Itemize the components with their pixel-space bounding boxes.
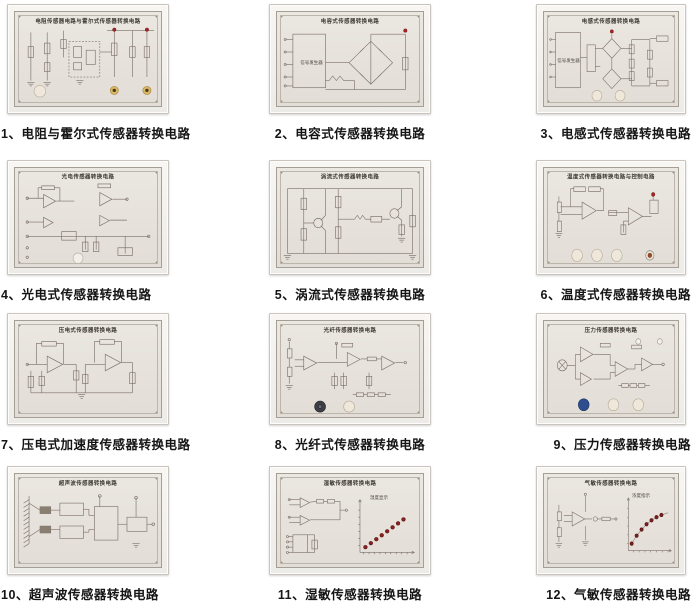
- circuit-art: [549, 489, 673, 563]
- panel-photo-2: 电容式传感器转换电路 信号发生器: [269, 4, 431, 114]
- graph-title-label: 浓度指示: [632, 492, 650, 498]
- circuit-art: [20, 336, 156, 413]
- panel-photo-1: 电阻传感器电路与霍尔式传感器转换电路: [7, 4, 169, 114]
- circuit-art: [282, 183, 418, 263]
- panel-title: 涡流式传感器转换电路: [284, 172, 415, 180]
- panel-cell-11: 湿敏传感器转换电路 湿度显示 11、湿敏传感器转换电路: [233, 460, 467, 603]
- panel-caption: 4、光电式传感器转换电路: [0, 284, 233, 303]
- panel-face: 压电式传感器转换电路: [14, 320, 162, 418]
- circuit-art: [20, 183, 156, 263]
- panel-cell-8: 光纤传感器转换电路 8、光纤式传感器转换电路: [233, 307, 467, 460]
- panel-caption: 2、电容式传感器转换电路: [233, 123, 467, 142]
- panel-caption: 10、超声波传感器转换电路: [0, 584, 233, 603]
- panel-cell-12: 气敏传感器转换电路 浓度指示 12、气敏传感器转换电路: [467, 460, 700, 603]
- panel-title: 光纤传感器转换电路: [284, 325, 415, 333]
- panel-face: 光纤传感器转换电路: [276, 320, 424, 418]
- panel-caption: 9、压力传感器转换电路: [467, 434, 700, 453]
- panel-face: 温度式传感器转换电路与控制电路: [543, 167, 679, 268]
- signal-generator-label: 信号发生器: [300, 59, 323, 65]
- panel-face: 超声波传感器转换电路: [14, 473, 162, 568]
- panel-face: 电阻传感器电路与霍尔式传感器转换电路: [14, 11, 162, 107]
- panel-face: 压力传感器转换电路: [543, 320, 679, 418]
- panel-title: 电阻传感器电路与霍尔式传感器转换电路: [22, 16, 153, 24]
- circuit-art: [20, 489, 156, 563]
- circuit-art: [282, 489, 418, 563]
- panel-title: 压电式传感器转换电路: [22, 325, 153, 333]
- panel-title: 压力传感器转换电路: [551, 325, 672, 333]
- panel-title: 光电传感器转换电路: [22, 172, 153, 180]
- panel-photo-3: 电感式传感器转换电路 信号发生器: [536, 4, 686, 114]
- circuit-art: [282, 336, 418, 413]
- panel-face: 电感式传感器转换电路 信号发生器: [543, 11, 679, 107]
- panel-title: 温度式传感器转换电路与控制电路: [551, 172, 672, 180]
- panel-caption: 3、电感式传感器转换电路: [467, 123, 700, 142]
- panel-photo-9: 压力传感器转换电路: [536, 313, 686, 425]
- panel-photo-7: 压电式传感器转换电路: [7, 313, 169, 425]
- panel-face: 电容式传感器转换电路 信号发生器: [276, 11, 424, 107]
- signal-generator-label: 信号发生器: [557, 57, 580, 63]
- panel-caption: 8、光纤式传感器转换电路: [233, 434, 467, 453]
- graph-title-label: 湿度显示: [370, 494, 388, 500]
- panel-title: 电感式传感器转换电路: [551, 16, 672, 24]
- panel-photo-4: 光电传感器转换电路: [7, 160, 169, 275]
- panel-cell-3: 电感式传感器转换电路 信号发生器 3、电感式传感器转换电路: [467, 0, 700, 152]
- panel-title: 超声波传感器转换电路: [22, 478, 153, 486]
- panel-photo-8: 光纤传感器转换电路: [269, 313, 431, 425]
- panel-cell-5: 涡流式传感器转换电路 5、涡流式传感器转换电路: [233, 152, 467, 307]
- panel-face: 光电传感器转换电路: [14, 167, 162, 268]
- panel-caption: 12、气敏传感器转换电路: [467, 584, 700, 603]
- panel-photo-12: 气敏传感器转换电路 浓度指示: [536, 466, 686, 575]
- panel-cell-6: 温度式传感器转换电路与控制电路 6、温度式传感器转换电路: [467, 152, 700, 307]
- panel-cell-4: 光电传感器转换电路 4、光电式传感器转换电路: [0, 152, 233, 307]
- panel-face: 气敏传感器转换电路 浓度指示: [543, 473, 679, 568]
- panel-caption: 11、湿敏传感器转换电路: [233, 584, 467, 603]
- panel-cell-10: 超声波传感器转换电路 10、超声波传感器转换电路: [0, 460, 233, 603]
- circuit-art: [549, 183, 673, 263]
- panel-photo-5: 涡流式传感器转换电路: [269, 160, 431, 275]
- panel-title: 气敏传感器转换电路: [551, 478, 672, 486]
- panel-caption: 7、压电式加速度传感器转换电路: [0, 434, 233, 453]
- panel-photo-10: 超声波传感器转换电路: [7, 466, 169, 575]
- panel-caption: 1、电阻与霍尔式传感器转换电路: [0, 123, 233, 142]
- catalog-grid: 电阻传感器电路与霍尔式传感器转换电路 1、电阻与霍尔式传感器转换电路 电容式传感…: [0, 0, 700, 603]
- circuit-art: [549, 336, 673, 413]
- panel-photo-6: 温度式传感器转换电路与控制电路: [536, 160, 686, 275]
- panel-title: 电容式传感器转换电路: [284, 16, 415, 24]
- panel-title: 湿敏传感器转换电路: [284, 478, 415, 486]
- panel-caption: 5、涡流式传感器转换电路: [233, 284, 467, 303]
- panel-cell-9: 压力传感器转换电路 9、压力传感器转换电路: [467, 307, 700, 460]
- panel-face: 涡流式传感器转换电路: [276, 167, 424, 268]
- panel-photo-11: 湿敏传感器转换电路 湿度显示: [269, 466, 431, 575]
- panel-cell-2: 电容式传感器转换电路 信号发生器 2、电容式传感器转换电路: [233, 0, 467, 152]
- circuit-art: [20, 27, 156, 102]
- panel-caption: 6、温度式传感器转换电路: [467, 284, 700, 303]
- panel-cell-7: 压电式传感器转换电路 7、压电式加速度传感器转换电路: [0, 307, 233, 460]
- panel-cell-1: 电阻传感器电路与霍尔式传感器转换电路 1、电阻与霍尔式传感器转换电路: [0, 0, 233, 152]
- panel-face: 湿敏传感器转换电路 湿度显示: [276, 473, 424, 568]
- circuit-art: [549, 27, 673, 102]
